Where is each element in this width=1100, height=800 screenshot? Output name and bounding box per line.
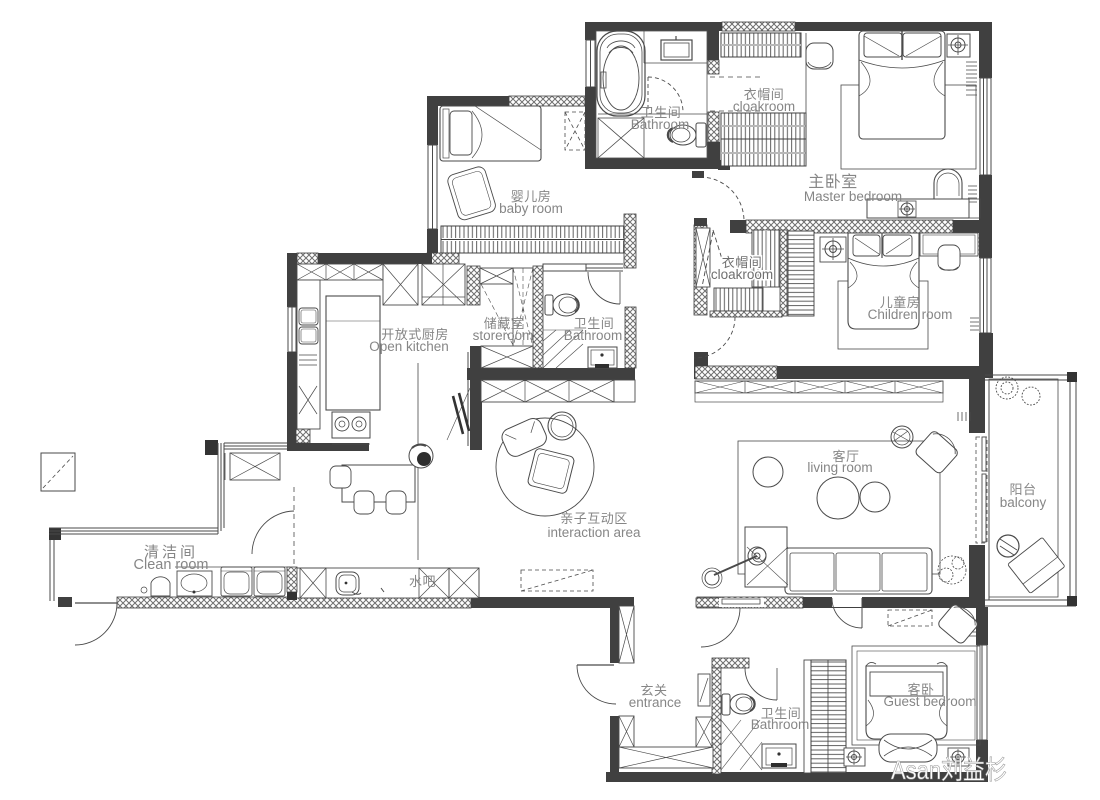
svg-text:Clean room: Clean room	[134, 557, 209, 573]
svg-text:Bathroom: Bathroom	[751, 717, 810, 732]
svg-text:Asan刘益杉: Asan刘益杉	[891, 755, 1007, 785]
svg-text:cloakroom: cloakroom	[733, 99, 795, 114]
svg-text:cloakroom: cloakroom	[711, 267, 773, 282]
svg-text:interaction area: interaction area	[547, 525, 641, 540]
svg-text:Master bedroom: Master bedroom	[804, 189, 902, 204]
svg-text:baby room: baby room	[499, 201, 563, 216]
svg-text:Bathroom: Bathroom	[564, 328, 623, 343]
svg-text:storeroom: storeroom	[473, 328, 534, 343]
svg-text:Guest bedroom: Guest bedroom	[883, 694, 976, 709]
svg-text:Bathroom: Bathroom	[631, 117, 690, 132]
svg-text:entrance: entrance	[629, 695, 682, 710]
svg-text:Open kitchen: Open kitchen	[369, 339, 449, 354]
svg-text:水吧: 水吧	[409, 574, 436, 589]
svg-text:balcony: balcony	[1000, 495, 1047, 510]
svg-text:亲子互动区: 亲子互动区	[560, 511, 628, 526]
svg-text:living room: living room	[807, 460, 872, 475]
svg-text:Children room: Children room	[868, 307, 953, 322]
